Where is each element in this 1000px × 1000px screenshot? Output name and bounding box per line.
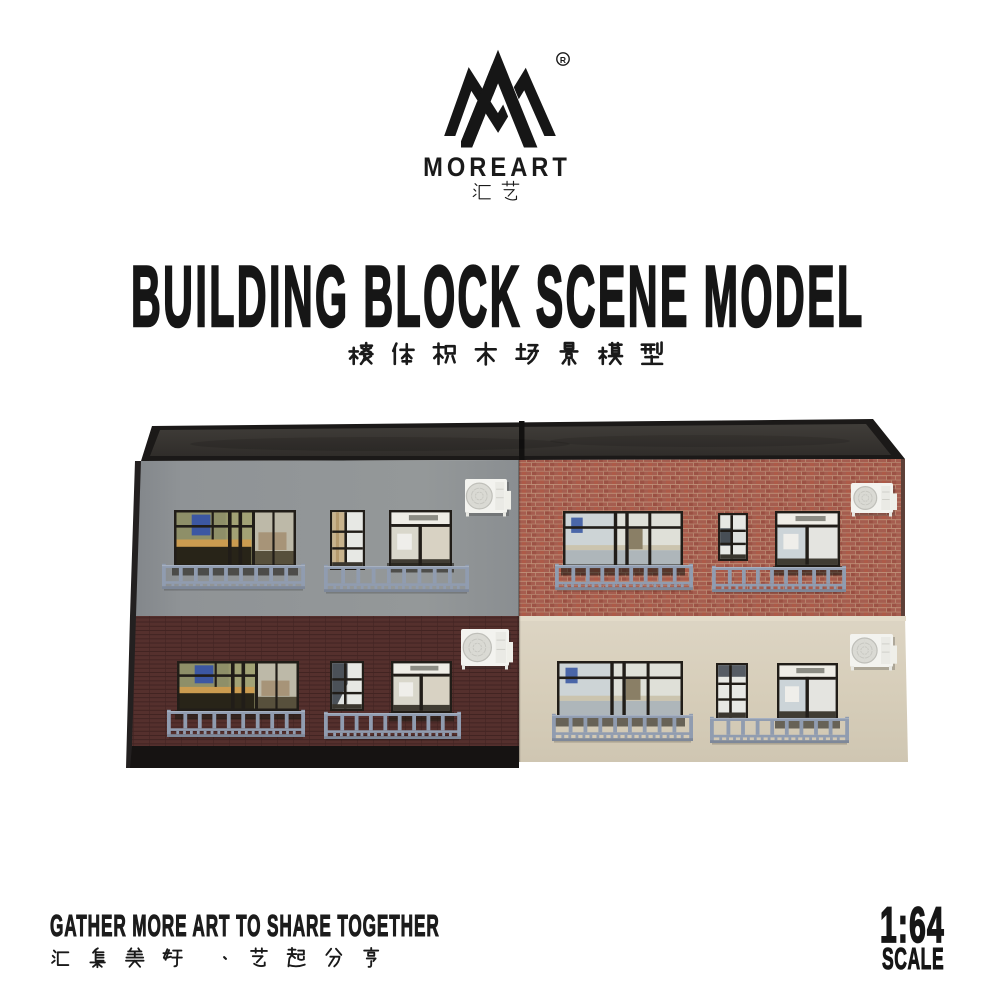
svg-text:R: R — [560, 55, 566, 65]
